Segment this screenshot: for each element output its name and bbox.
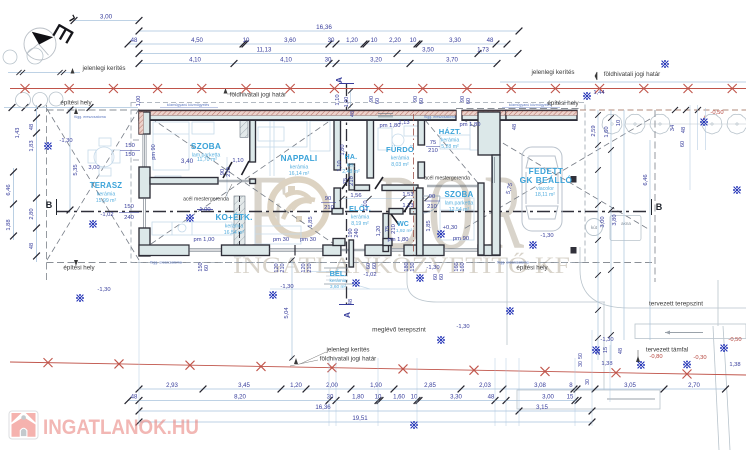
svg-text:1,88: 1,88 (6, 219, 12, 230)
svg-text:4,10: 4,10 (280, 56, 292, 63)
svg-text:3,50: 3,50 (422, 46, 434, 53)
svg-text:10: 10 (371, 37, 378, 44)
svg-text:48: 48 (350, 111, 356, 117)
svg-text:pm 1,80: pm 1,80 (380, 123, 401, 129)
svg-text:150: 150 (410, 262, 416, 271)
svg-text:1,80: 1,80 (340, 144, 346, 155)
svg-text:1,10: 1,10 (232, 158, 243, 164)
svg-text:építési hely: építési hely (516, 265, 548, 272)
svg-text:SZOBA: SZOBA (445, 190, 474, 199)
svg-text:8,19 m²: 8,19 m² (351, 221, 369, 227)
svg-text:3,00: 3,00 (542, 393, 554, 400)
svg-text:acél mestergerenda: acél mestergerenda (183, 197, 229, 203)
svg-text:1,20: 1,20 (376, 226, 382, 237)
svg-text:-1,30: -1,30 (540, 233, 553, 239)
svg-text:1,38: 1,38 (729, 362, 740, 368)
svg-text:-1,30: -1,30 (97, 287, 110, 293)
svg-text:3,80: 3,80 (612, 214, 618, 225)
svg-text:-1,30: -1,30 (600, 337, 613, 343)
svg-text:2,59: 2,59 (591, 125, 597, 136)
svg-text:1,13: 1,13 (398, 120, 409, 126)
svg-text:210: 210 (226, 167, 232, 177)
svg-text:3,20: 3,20 (370, 56, 382, 63)
svg-text:210: 210 (428, 148, 438, 154)
svg-text:3,00: 3,00 (600, 216, 606, 227)
svg-text:16,36: 16,36 (316, 24, 332, 31)
svg-text:kerámia: kerámia (97, 192, 116, 198)
svg-text:építési hely: építési hely (63, 265, 95, 272)
svg-text:150: 150 (125, 143, 135, 149)
svg-text:kút: kút (591, 225, 598, 230)
svg-text:10: 10 (410, 37, 417, 44)
svg-text:SZOBA: SZOBA (191, 141, 221, 151)
svg-text:WC: WC (397, 221, 409, 228)
svg-text:6,46: 6,46 (6, 184, 12, 195)
svg-text:1,44: 1,44 (593, 90, 605, 96)
svg-text:2,03: 2,03 (479, 382, 491, 389)
svg-text:-1,02: -1,02 (100, 212, 113, 218)
svg-text:FEDETT: FEDETT (529, 167, 564, 176)
svg-text:12,54 m²: 12,54 m² (449, 207, 470, 213)
svg-text:kerámia: kerámia (290, 165, 309, 171)
svg-text:3,60 m²: 3,60 m² (330, 284, 347, 290)
svg-text:INGATLANOK.HU: INGATLANOK.HU (43, 415, 199, 439)
svg-text:1,85: 1,85 (308, 216, 314, 227)
svg-text:+0,30: +0,30 (443, 225, 458, 231)
svg-text:-1,30: -1,30 (59, 138, 72, 144)
svg-text:1,60: 1,60 (604, 126, 610, 137)
svg-text:8,20: 8,20 (234, 393, 246, 400)
svg-text:tervezett támfal: tervezett támfal (646, 347, 688, 354)
svg-text:KO+ÉTK.: KO+ÉTK. (215, 212, 252, 222)
svg-text:közműgyanú közműgyelés: közműgyanú közműgyelés (509, 103, 552, 107)
svg-text:2,70: 2,70 (688, 382, 700, 389)
svg-text:1,80: 1,80 (352, 393, 364, 400)
svg-text:60: 60 (680, 141, 686, 147)
svg-text:-1,30: -1,30 (426, 265, 439, 271)
svg-text:19,51: 19,51 (352, 415, 368, 422)
svg-text:2,80: 2,80 (29, 208, 35, 219)
svg-text:30: 30 (578, 361, 584, 367)
svg-text:48: 48 (131, 37, 138, 44)
svg-text:1,92 m²: 1,92 m² (396, 228, 413, 234)
svg-text:3,30: 3,30 (449, 37, 461, 44)
svg-text:48: 48 (488, 393, 495, 400)
svg-text:210: 210 (349, 176, 355, 186)
svg-text:48: 48 (487, 37, 494, 44)
svg-text:jelenlegi kerítés: jelenlegi kerítés (531, 69, 575, 76)
svg-text:90: 90 (325, 196, 331, 202)
svg-text:150: 150 (125, 152, 135, 158)
svg-text:3,70: 3,70 (446, 56, 458, 63)
svg-text:30: 30 (328, 37, 335, 44)
svg-text:210: 210 (280, 263, 286, 272)
svg-text:pm 1,80: pm 1,80 (388, 237, 409, 243)
svg-text:15: 15 (603, 347, 609, 353)
svg-text:1,53: 1,53 (402, 192, 413, 198)
svg-text:kerámia: kerámia (329, 278, 346, 284)
svg-text:1,20: 1,20 (290, 382, 302, 389)
svg-text:2,85: 2,85 (424, 382, 436, 389)
svg-text:3,00: 3,00 (100, 13, 113, 20)
svg-text:11,13: 11,13 (257, 46, 272, 53)
svg-text:pm 30: pm 30 (300, 237, 316, 243)
svg-text:2,00: 2,00 (326, 382, 338, 389)
svg-text:jelenlegi kerítés: jelenlegi kerítés (326, 347, 370, 354)
svg-text:10: 10 (243, 37, 250, 44)
svg-text:10: 10 (616, 120, 622, 126)
svg-text:HÁZT.: HÁZT. (439, 127, 462, 136)
svg-text:acél mestergerenda: acél mestergerenda (424, 176, 470, 182)
svg-text:-1,30: -1,30 (456, 324, 469, 330)
svg-text:1,38: 1,38 (601, 361, 612, 367)
svg-text:48: 48 (681, 127, 687, 133)
svg-text:HA.: HA. (345, 154, 358, 161)
svg-text:4,10: 4,10 (189, 56, 201, 63)
svg-text:15,99 m²: 15,99 m² (96, 198, 117, 204)
svg-text:16,54 m²: 16,54 m² (224, 230, 245, 236)
svg-text:60: 60 (466, 98, 472, 104)
svg-text:3,40: 3,40 (181, 158, 194, 165)
svg-text:pm 1,00: pm 1,00 (194, 237, 215, 243)
svg-text:-0,80: -0,80 (649, 354, 662, 360)
svg-text:60: 60 (375, 98, 381, 104)
svg-text:1,00: 1,00 (199, 207, 210, 213)
svg-text:240: 240 (124, 215, 134, 221)
svg-text:10: 10 (375, 393, 382, 400)
svg-text:B: B (656, 202, 663, 212)
svg-text:75: 75 (430, 140, 436, 146)
svg-text:5,28 m²: 5,28 m² (441, 144, 459, 150)
svg-text:3,00: 3,00 (88, 165, 99, 171)
svg-text:34: 34 (670, 124, 676, 131)
svg-text:FÜRDŐ: FÜRDŐ (386, 145, 414, 154)
svg-text:tervezett terepszint: tervezett terepszint (649, 301, 703, 308)
svg-text:1,10: 1,10 (337, 160, 343, 171)
svg-text:-0,30: -0,30 (693, 355, 706, 361)
svg-text:1,43: 1,43 (15, 128, 21, 139)
svg-text:11,70 m²: 11,70 m² (197, 157, 217, 163)
svg-text:A: A (334, 77, 344, 83)
svg-text:akna: akna (621, 221, 631, 226)
svg-text:pm 90: pm 90 (453, 236, 469, 242)
svg-text:1,00: 1,00 (136, 96, 142, 107)
svg-text:60: 60 (204, 265, 210, 271)
svg-text:3,60: 3,60 (284, 37, 296, 44)
svg-text:6,46: 6,46 (643, 174, 649, 185)
svg-text:210: 210 (307, 263, 313, 272)
svg-text:60: 60 (419, 98, 425, 104)
svg-text:függ. ereszcsatorna: függ. ereszcsatorna (74, 115, 106, 119)
svg-text:3,05: 3,05 (624, 382, 636, 389)
svg-text:-1,02: -1,02 (363, 272, 376, 278)
svg-text:építési hely: építési hely (547, 100, 579, 107)
svg-text:1,10: 1,10 (335, 94, 341, 105)
svg-text:kerámia: kerámia (351, 215, 370, 221)
svg-text:160: 160 (460, 262, 466, 271)
svg-text:30: 30 (327, 393, 334, 400)
svg-text:ker.: ker. (347, 163, 355, 169)
svg-text:48: 48 (512, 124, 518, 130)
svg-text:1,90: 1,90 (370, 382, 382, 389)
svg-text:2,48 m²: 2,48 m² (342, 169, 360, 175)
svg-text:3,45: 3,45 (238, 382, 250, 389)
svg-text:48: 48 (29, 124, 35, 130)
svg-text:függ. ereszcsatorna: függ. ereszcsatorna (424, 115, 456, 119)
svg-text:A: A (342, 312, 352, 318)
svg-text:18,11 m²: 18,11 m² (535, 192, 555, 198)
svg-text:48: 48 (348, 299, 354, 305)
svg-text:30: 30 (325, 56, 332, 63)
svg-text:1,00: 1,00 (344, 97, 350, 108)
svg-text:kerámia: kerámia (391, 156, 410, 162)
svg-text:48: 48 (131, 393, 138, 400)
svg-text:NAPPALI: NAPPALI (281, 154, 318, 163)
svg-text:-0,50: -0,50 (728, 337, 741, 343)
svg-text:függ. ereszcsatorna: függ. ereszcsatorna (150, 261, 182, 265)
svg-text:15: 15 (567, 393, 574, 400)
svg-text:1,85: 1,85 (426, 220, 432, 231)
svg-text:kerámia: kerámia (225, 224, 244, 230)
svg-text:90: 90 (429, 194, 435, 200)
svg-text:meglévő terepszint: meglévő terepszint (372, 327, 426, 334)
svg-text:210: 210 (391, 224, 397, 234)
svg-text:-1,30: -1,30 (280, 284, 293, 290)
svg-text:30: 30 (585, 379, 591, 385)
svg-text:16,14 m²: 16,14 m² (289, 171, 310, 177)
svg-text:1,60: 1,60 (393, 393, 405, 400)
svg-text:1,73: 1,73 (477, 46, 489, 53)
svg-text:210: 210 (324, 205, 334, 211)
svg-text:jelenlegi kerítés: jelenlegi kerítés (82, 65, 126, 72)
svg-text:kerámia: kerámia (441, 138, 460, 144)
svg-text:TERASZ: TERASZ (90, 181, 122, 190)
svg-text:földhivatali jogi határ: földhivatali jogi határ (230, 92, 286, 99)
svg-text:1,20: 1,20 (346, 37, 358, 44)
svg-text:B: B (46, 200, 53, 210)
svg-text:BÉL.: BÉL. (330, 269, 347, 278)
svg-text:2,93: 2,93 (166, 382, 178, 389)
svg-text:GK BEÁLLÓ: GK BEÁLLÓ (520, 174, 573, 185)
svg-text:1,56: 1,56 (350, 193, 361, 199)
svg-text:50: 50 (578, 353, 584, 359)
svg-text:földhivatali jogi határ: földhivatali jogi határ (604, 71, 660, 78)
svg-text:8,03 m²: 8,03 m² (391, 162, 409, 168)
svg-text:2,20: 2,20 (389, 37, 401, 44)
svg-text:60: 60 (372, 263, 378, 269)
svg-text:közműgyanú közműgyelés: közműgyanú közműgyelés (167, 103, 210, 107)
svg-text:3,08: 3,08 (534, 382, 546, 389)
svg-text:150: 150 (124, 204, 134, 210)
svg-text:1,83: 1,83 (29, 140, 35, 151)
svg-text:építési hely: építési hely (60, 100, 92, 107)
svg-text:-0,50: -0,50 (710, 110, 723, 116)
svg-text:1,10: 1,10 (363, 200, 369, 211)
svg-text:48: 48 (618, 348, 624, 354)
svg-text:5,35: 5,35 (73, 164, 79, 175)
svg-text:5,04: 5,04 (284, 307, 290, 319)
svg-text:210: 210 (427, 204, 437, 210)
svg-text:240: 240 (354, 228, 360, 237)
svg-text:48: 48 (29, 243, 35, 249)
svg-text:pm 30: pm 30 (273, 237, 289, 243)
svg-text:pm 90: pm 90 (151, 144, 157, 160)
svg-text:4,50: 4,50 (191, 37, 203, 44)
svg-text:60: 60 (439, 274, 445, 280)
svg-text:lam.parketta: lam.parketta (445, 201, 474, 207)
svg-text:3,30: 3,30 (450, 393, 462, 400)
svg-text:1,13: 1,13 (402, 203, 413, 209)
svg-text:földhivatali jogi határ: földhivatali jogi határ (320, 356, 376, 363)
svg-text:3,15: 3,15 (536, 404, 548, 411)
svg-text:pm 1,80: pm 1,80 (460, 122, 481, 128)
